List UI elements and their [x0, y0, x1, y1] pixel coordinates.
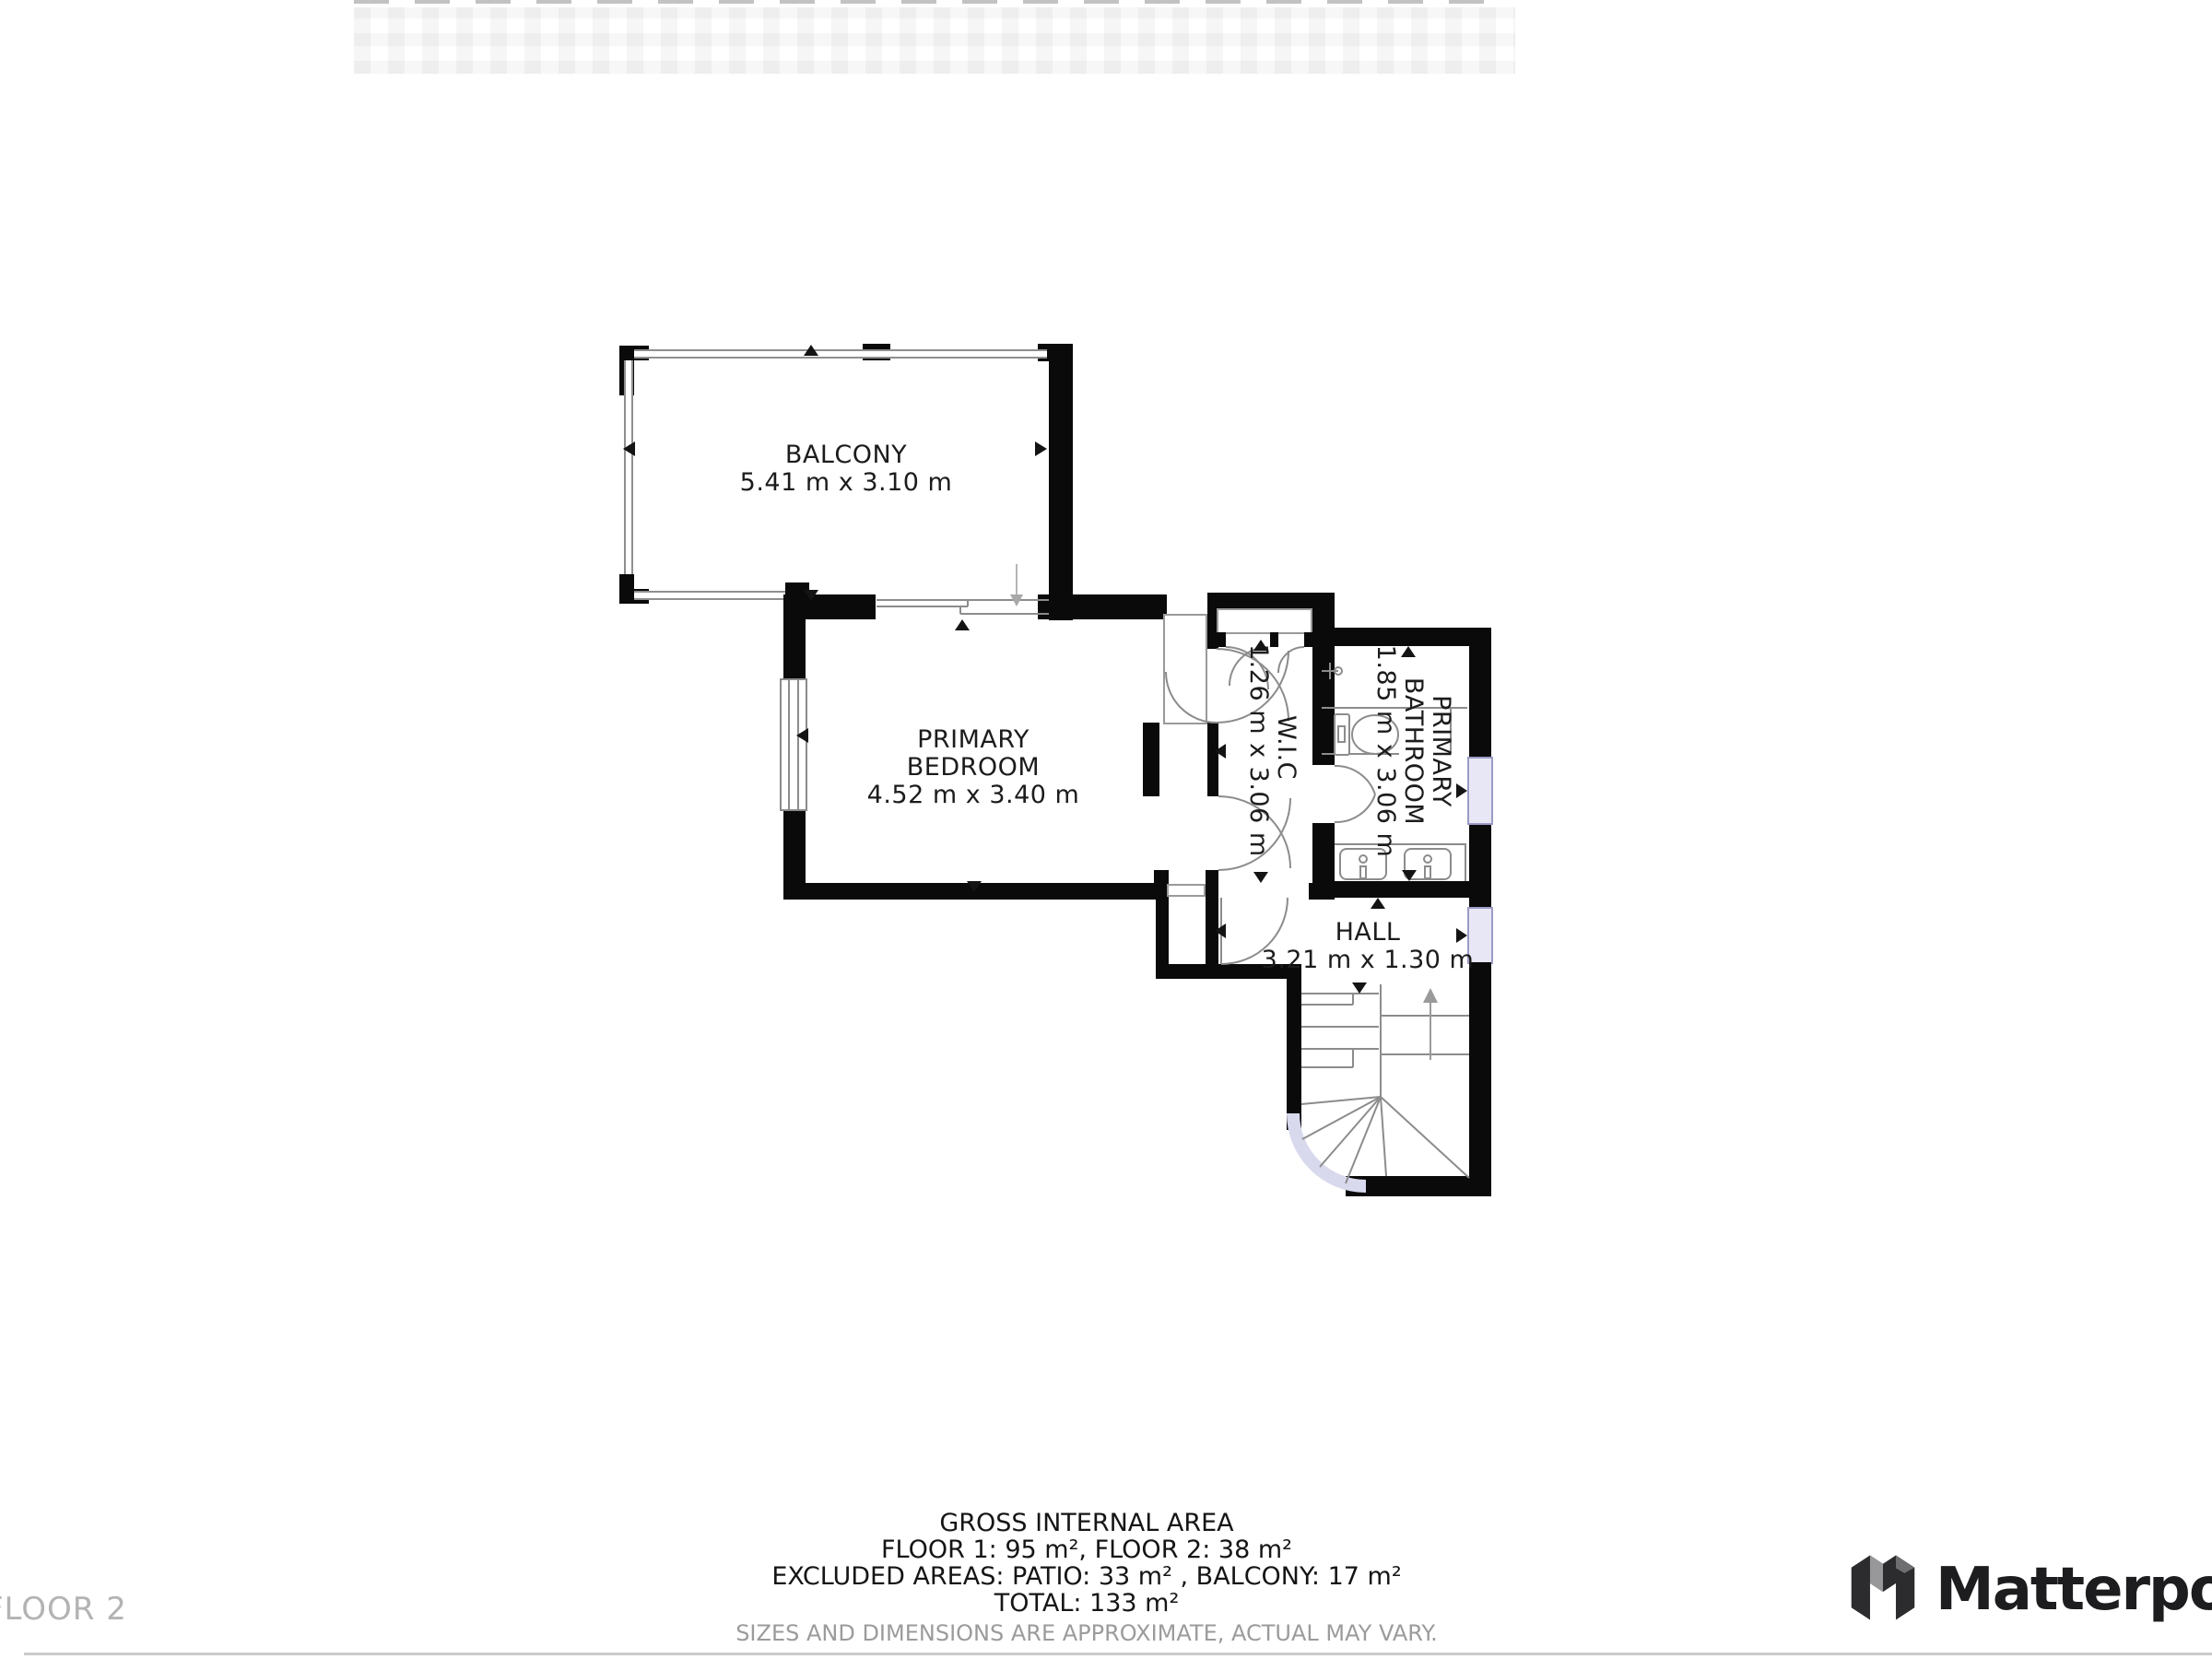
direction-arrow-up	[955, 619, 970, 630]
plan-linework	[0, 0, 2212, 1659]
stairs-up-arrow	[1423, 988, 1438, 1003]
gross-internal-area-title: GROSS INTERNAL AREA	[718, 1510, 1455, 1536]
matterport-logo: Matterport	[1847, 1550, 1919, 1629]
matterport-icon	[1847, 1550, 1919, 1625]
area-summary: GROSS INTERNAL AREA FLOOR 1: 95 m², FLOO…	[718, 1510, 1455, 1647]
excluded-areas: EXCLUDED AREAS: PATIO: 33 m² , BALCONY: …	[718, 1563, 1455, 1590]
room-label-balcony: BALCONY 5.41 m x 3.10 m	[708, 441, 984, 497]
room-name: BALCONY	[708, 441, 984, 469]
room-label-hall: HALL 3.21 m x 1.30 m	[1230, 919, 1506, 974]
floorplan-page: BALCONY 5.41 m x 3.10 m PRIMARY BEDROOM …	[0, 0, 2212, 1659]
room-dims: 1.26 m x 3.06 m	[1244, 644, 1272, 851]
room-name: BATHROOM	[1399, 629, 1427, 873]
direction-arrow-up	[804, 345, 818, 356]
room-dims: 1.85 m x 3.06 m	[1371, 629, 1399, 873]
room-dims: 4.52 m x 3.40 m	[835, 782, 1112, 809]
room-dims: 5.41 m x 3.10 m	[708, 469, 984, 497]
direction-arrow-left	[1215, 744, 1226, 759]
direction-arrow-up	[1371, 898, 1385, 909]
room-name: W.I.C	[1272, 644, 1300, 851]
faucet-icon	[1322, 663, 1342, 679]
room-name: HALL	[1230, 919, 1506, 947]
direction-arrow-down	[1352, 982, 1367, 994]
matterport-wordmark: Matterport	[1935, 1556, 2212, 1624]
room-dims: 3.21 m x 1.30 m	[1230, 947, 1506, 974]
room-name: BEDROOM	[835, 754, 1112, 782]
room-label-bathroom: PRIMARY BATHROOM 1.85 m x 3.06 m	[1366, 629, 1454, 873]
page-bottom-border	[24, 1653, 2212, 1655]
floor-label: FLOOR 2	[0, 1591, 127, 1628]
total-area: TOTAL: 133 m²	[718, 1590, 1455, 1617]
room-label-wic: W.I.C 1.26 m x 3.06 m	[1241, 644, 1300, 851]
direction-arrow-left	[623, 441, 635, 456]
direction-arrow-down	[1253, 872, 1268, 883]
floor-areas: FLOOR 1: 95 m², FLOOR 2: 38 m²	[718, 1536, 1455, 1563]
stairs	[1301, 984, 1469, 1183]
direction-arrow-down	[804, 590, 818, 601]
room-name: PRIMARY	[1427, 629, 1454, 873]
sliding-door	[877, 600, 1049, 614]
room-name: PRIMARY	[835, 726, 1112, 754]
disclaimer: SIZES AND DIMENSIONS ARE APPROXIMATE, AC…	[718, 1620, 1455, 1647]
room-label-bedroom: PRIMARY BEDROOM 4.52 m x 3.40 m	[835, 726, 1112, 809]
direction-arrow-right	[1456, 783, 1467, 798]
direction-arrow-right	[1035, 441, 1047, 456]
direction-arrow-down	[967, 881, 982, 892]
